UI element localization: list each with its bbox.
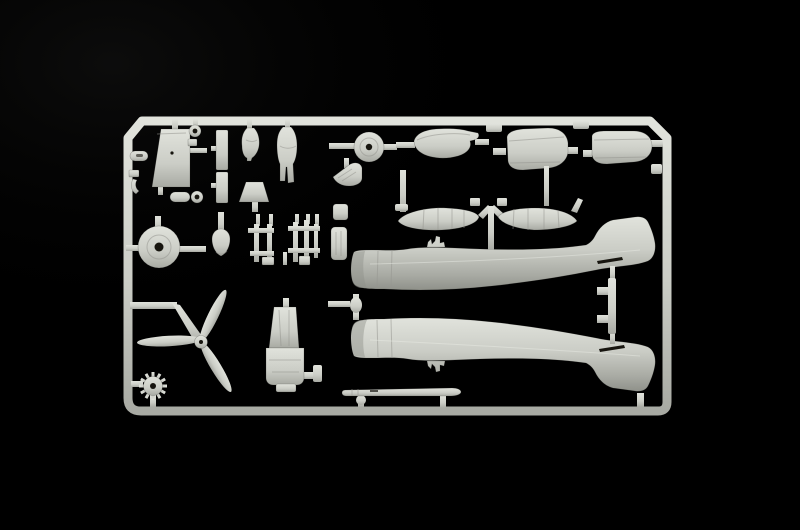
tank-center-stem: [488, 206, 494, 250]
sprue-photo-canvas: [0, 0, 800, 530]
sprue-photograph: [0, 0, 800, 530]
cowl-flap-parts: [331, 204, 348, 260]
